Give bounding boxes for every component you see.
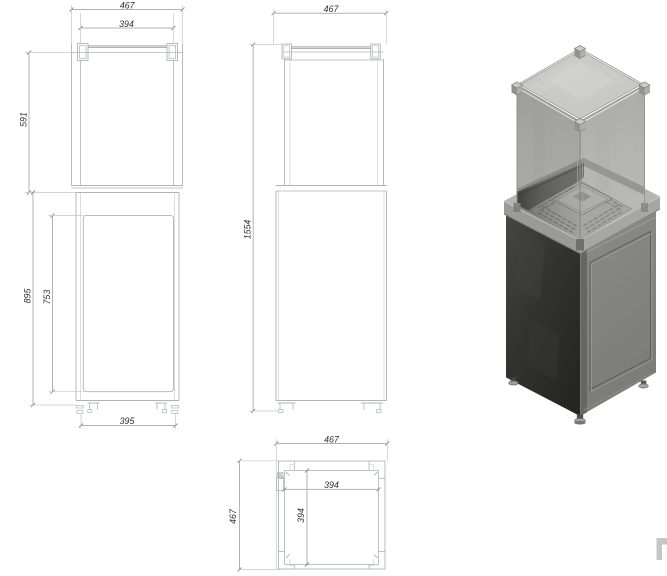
svg-text:467: 467 [324,434,340,444]
svg-text:394: 394 [324,480,339,490]
svg-text:895: 895 [22,289,32,304]
svg-text:394: 394 [296,508,306,523]
svg-text:1554: 1554 [242,220,252,240]
svg-text:394: 394 [119,19,134,29]
svg-text:467: 467 [120,0,136,10]
svg-text:467: 467 [228,508,238,524]
svg-text:395: 395 [120,416,135,426]
svg-text:591: 591 [18,112,28,127]
svg-text:753: 753 [42,290,52,305]
svg-text:467: 467 [324,4,340,14]
